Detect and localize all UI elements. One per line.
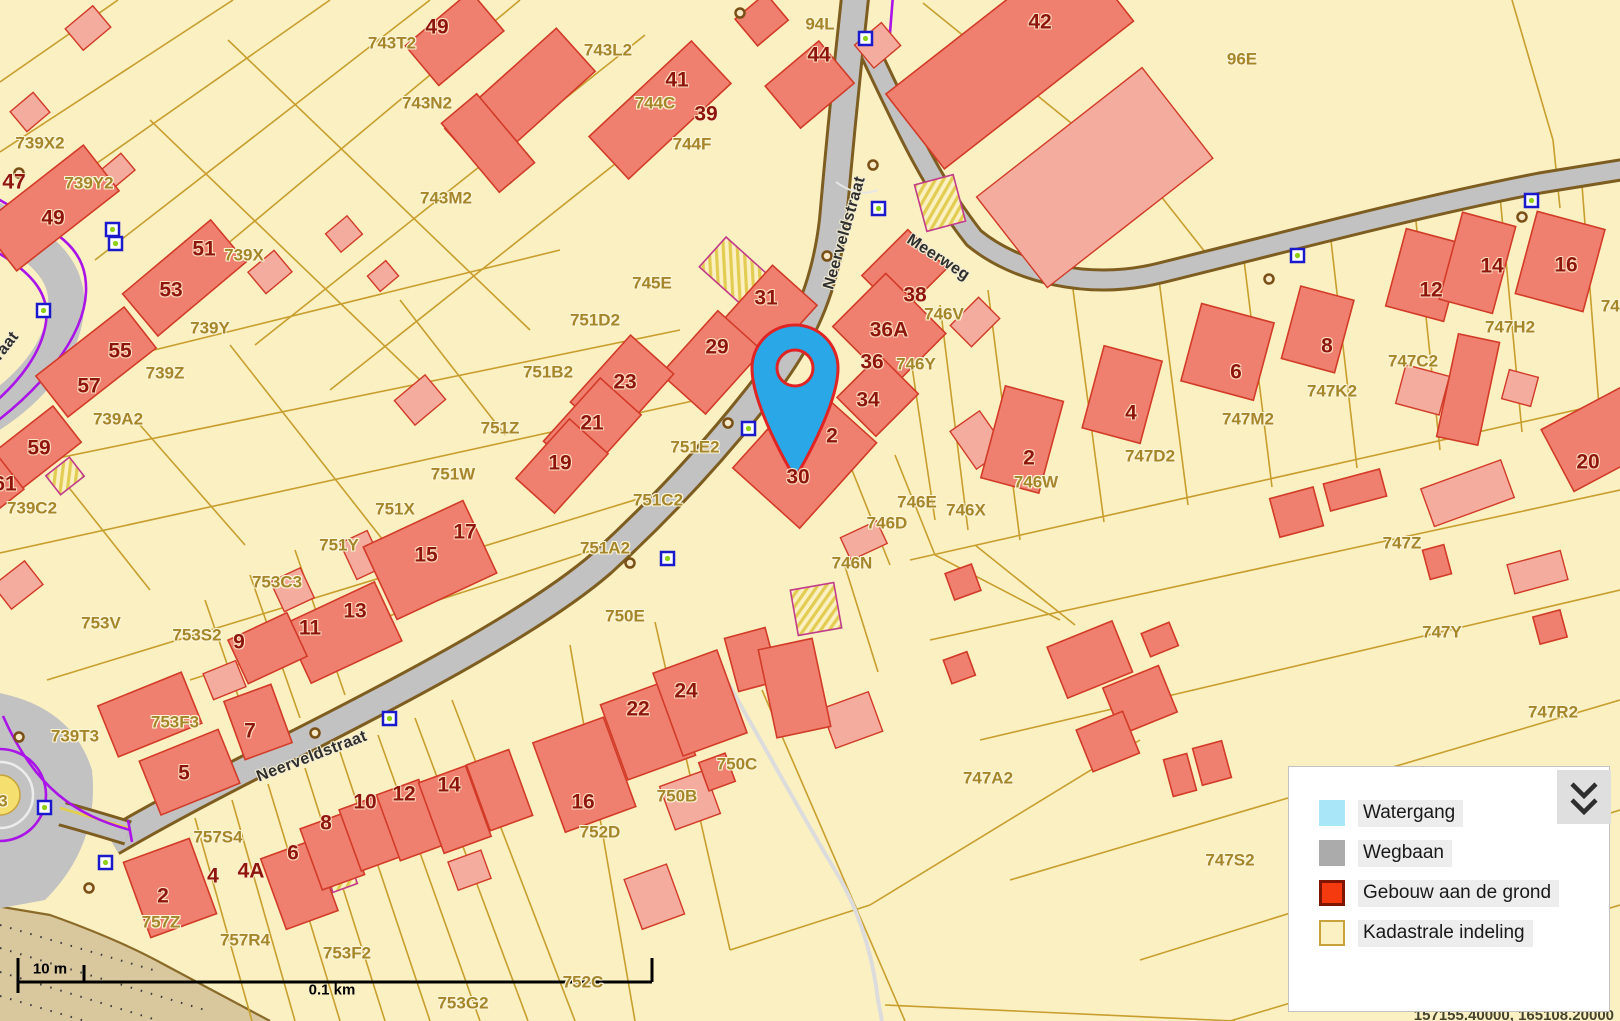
collapse-legend-button[interactable] (1557, 770, 1611, 824)
legend-item-label: Gebouw aan de grond (1358, 880, 1559, 907)
legend-item: Wegbaan (1319, 833, 1609, 873)
chevron-double-down-icon (1557, 770, 1611, 824)
scale-label-km: 0.1 km (309, 982, 356, 999)
legend-item: Gebouw aan de grond (1319, 873, 1609, 913)
legend-swatch-icon (1319, 840, 1345, 866)
map-viewport[interactable]: 743T2743L2743N2744C744F743M294L96E739X27… (0, 0, 1620, 1021)
legend-panel: Watergang Wegbaan Gebouw aan de grond Ka… (1288, 766, 1610, 1012)
legend-item: Kadastrale indeling (1319, 913, 1609, 953)
legend-swatch-icon (1319, 920, 1345, 946)
building (1533, 610, 1567, 644)
scale-label-metric: 10 m (33, 961, 67, 978)
legend-item-label: Wegbaan (1358, 840, 1452, 867)
legend-swatch-icon (1319, 800, 1345, 826)
legend-item-label: Kadastrale indeling (1358, 920, 1533, 947)
legend-item-label: Watergang (1358, 800, 1463, 827)
legend-swatch-icon (1319, 880, 1345, 906)
